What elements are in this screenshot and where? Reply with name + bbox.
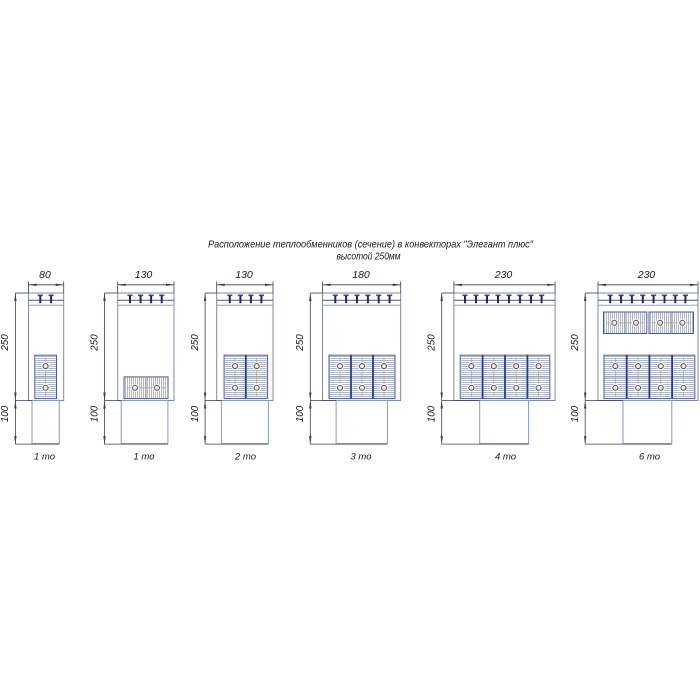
svg-text:230: 230 <box>494 269 513 281</box>
svg-text:100: 100 <box>570 405 581 422</box>
svg-text:80: 80 <box>39 269 51 281</box>
svg-text:высотой 250мм: высотой 250мм <box>337 251 401 263</box>
svg-text:3 то: 3 то <box>350 452 371 463</box>
svg-text:250: 250 <box>570 334 581 352</box>
svg-text:100: 100 <box>190 405 201 422</box>
svg-text:4 то: 4 то <box>495 452 516 463</box>
svg-text:100: 100 <box>0 405 11 422</box>
svg-text:1 то: 1 то <box>34 452 55 463</box>
svg-text:130: 130 <box>135 269 153 281</box>
svg-text:Расположение теплообменников (: Расположение теплообменников (сечение) в… <box>208 239 534 251</box>
svg-text:180: 180 <box>352 269 370 281</box>
svg-text:100: 100 <box>295 405 306 422</box>
svg-text:250: 250 <box>89 334 100 352</box>
svg-text:1 то: 1 то <box>133 452 154 463</box>
svg-text:2 то: 2 то <box>234 452 256 463</box>
svg-text:250: 250 <box>190 334 201 352</box>
svg-text:250: 250 <box>295 334 306 352</box>
svg-text:6 то: 6 то <box>639 452 660 463</box>
svg-text:130: 130 <box>235 269 253 281</box>
svg-text:100: 100 <box>89 405 100 422</box>
svg-text:250: 250 <box>427 334 438 352</box>
svg-text:100: 100 <box>427 405 438 422</box>
svg-text:250: 250 <box>0 334 11 352</box>
svg-text:230: 230 <box>637 269 656 281</box>
